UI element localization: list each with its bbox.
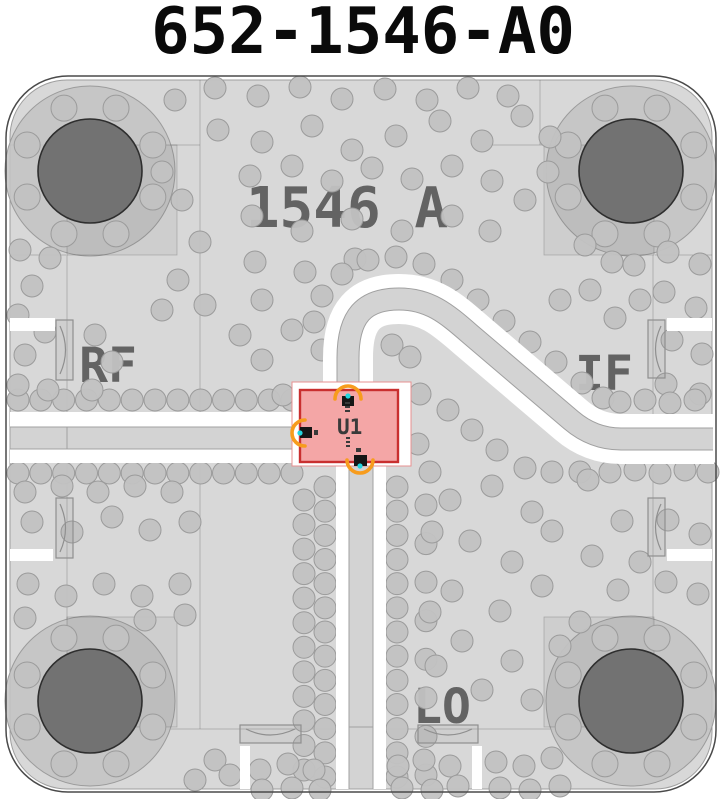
via [103,751,129,777]
via [251,779,273,799]
via [39,247,61,269]
via [244,251,266,273]
via [14,607,36,629]
via [471,130,493,152]
via [401,168,423,190]
via [81,379,103,401]
via [691,343,713,365]
via [425,655,447,677]
via [684,389,706,411]
via [555,714,581,740]
via [293,538,315,560]
via [169,573,191,595]
via [239,165,261,187]
via [140,662,166,688]
via [151,299,173,321]
via [421,521,443,543]
via [101,351,123,373]
via [574,234,596,256]
via [303,759,325,781]
via [289,76,311,98]
via [131,585,153,607]
via [541,520,563,542]
via [514,457,536,479]
via [644,625,670,651]
via [314,645,336,667]
via [293,563,315,585]
via [599,461,621,483]
via [294,261,316,283]
via [579,279,601,301]
via [51,625,77,651]
via [653,281,675,303]
via [413,253,435,275]
via [174,604,196,626]
via [167,269,189,291]
via [629,289,651,311]
via [569,611,591,633]
via [386,669,408,691]
via [189,231,211,253]
via [190,462,212,484]
via [519,779,541,799]
via [659,392,681,414]
via [623,254,645,276]
via [321,170,343,192]
via [213,389,235,411]
via [140,184,166,210]
via [634,389,656,411]
via [124,475,146,497]
via [249,759,271,781]
via [649,462,671,484]
via [314,500,336,522]
via [521,501,543,523]
via [386,500,408,522]
via [481,475,503,497]
via [687,583,709,605]
via [451,630,473,652]
via [272,384,294,406]
mounting-hole [579,649,683,753]
via [103,221,129,247]
via [293,661,315,683]
via [437,399,459,421]
via [144,389,166,411]
via [541,461,563,483]
via [577,469,599,491]
via [51,751,77,777]
via [331,263,353,285]
via [55,585,77,607]
via [549,635,571,657]
via [501,551,523,573]
mounting-hole [38,119,142,223]
via [247,85,269,107]
via [386,597,408,619]
via [592,625,618,651]
via [51,95,77,121]
via [314,524,336,546]
via [134,609,156,631]
via [399,346,421,368]
via [311,285,333,307]
via [251,289,273,311]
via [486,439,508,461]
via [415,494,437,516]
via [140,714,166,740]
via [51,221,77,247]
via [204,77,226,99]
via [76,462,98,484]
via [103,625,129,651]
via [555,662,581,688]
mounting-hole [579,119,683,223]
via [481,170,503,192]
via [644,751,670,777]
via [213,462,235,484]
via [281,777,303,799]
via [314,718,336,740]
via [293,587,315,609]
via [439,755,461,777]
via [644,95,670,121]
via [164,89,186,111]
via [611,510,633,532]
via [101,506,123,528]
via [489,777,511,799]
via [391,220,413,242]
via [386,573,408,595]
via [501,650,523,672]
via [7,374,29,396]
via [314,621,336,643]
via [314,694,336,716]
via [21,511,43,533]
via [441,205,463,227]
via [689,253,711,275]
via [314,597,336,619]
via [485,751,507,773]
via [14,662,40,688]
via [21,275,43,297]
via [190,389,212,411]
via [14,714,40,740]
via [416,89,438,111]
via [184,769,206,791]
pcb-layout-canvas: 652-1546-A0 1546 A RF IF LO [0,0,722,799]
via [387,755,409,777]
via [409,383,431,405]
via [429,110,451,132]
page-title: 652-1546-A0 [151,0,575,69]
via [441,155,463,177]
component-refdes: U1 [337,415,362,439]
via [681,714,707,740]
via [489,600,511,622]
via [293,514,315,536]
via [207,119,229,141]
via [549,289,571,311]
via [161,481,183,503]
via [549,775,571,797]
via [447,775,469,797]
via [14,132,40,158]
via [179,511,201,533]
via [374,78,396,100]
via [139,519,161,541]
via [657,241,679,263]
via [386,694,408,716]
via [277,753,299,775]
rf-trace [10,427,300,449]
via [681,184,707,210]
via [357,249,379,271]
via [441,580,463,602]
via [293,636,315,658]
via [386,718,408,740]
via [419,601,441,623]
via [144,462,166,484]
via [541,747,563,769]
via [251,131,273,153]
via [98,462,120,484]
via [391,777,413,799]
via [461,419,483,441]
via [314,573,336,595]
via [555,184,581,210]
via [386,645,408,667]
via [689,523,711,545]
via [171,189,193,211]
via [303,311,325,333]
via [314,476,336,498]
via [30,462,52,484]
via [229,324,251,346]
lo-trace [349,466,373,789]
via [293,612,315,634]
mounting-hole [38,649,142,753]
via [421,779,443,799]
via [386,476,408,498]
via [413,749,435,771]
via [51,475,73,497]
via [281,155,303,177]
via [121,389,143,411]
via [419,461,441,483]
via [314,549,336,571]
via [235,462,257,484]
via [479,220,501,242]
via [655,571,677,593]
via [539,126,561,148]
via [14,481,36,503]
via [219,764,241,786]
via [592,95,618,121]
via [281,319,303,341]
via [457,77,479,99]
via [531,575,553,597]
via [301,115,323,137]
via [581,545,603,567]
via [415,571,437,593]
via [293,489,315,511]
via [151,161,173,183]
via [471,679,493,701]
via [415,687,437,709]
via [681,132,707,158]
via [251,349,273,371]
via [385,246,407,268]
via [9,239,31,261]
via [607,579,629,601]
via [386,524,408,546]
via [341,208,363,230]
via [84,324,106,346]
via [385,125,407,147]
via [604,307,626,329]
via [235,389,257,411]
via [14,344,36,366]
via [681,662,707,688]
via [341,139,363,161]
via [258,462,280,484]
via [241,205,263,227]
via [17,573,39,595]
via [601,251,623,273]
via [513,755,535,777]
via [386,549,408,571]
via [291,220,313,242]
via [93,573,115,595]
via [521,689,543,711]
via [609,391,631,413]
via [167,389,189,411]
via [537,161,559,183]
via [314,669,336,691]
via [14,184,40,210]
via [459,530,481,552]
via [497,85,519,107]
via [592,751,618,777]
component-u1[interactable]: U1 [292,382,411,473]
via [685,297,707,319]
via [37,379,59,401]
via [511,105,533,127]
via [293,685,315,707]
via [309,779,331,799]
via [87,481,109,503]
via [194,294,216,316]
via [140,132,166,158]
via [361,157,383,179]
via [331,88,353,110]
via [386,621,408,643]
via [514,189,536,211]
via [439,489,461,511]
via [103,95,129,121]
